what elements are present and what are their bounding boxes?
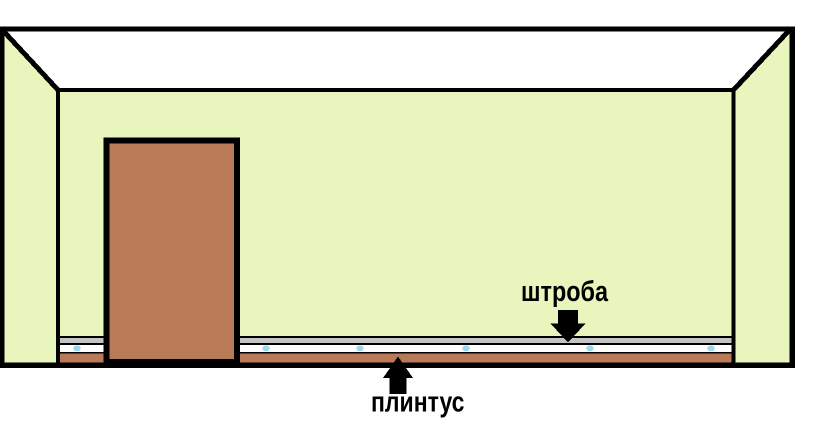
svg-text:штроба: штроба [521,276,609,308]
svg-text:плинтус: плинтус [371,387,465,419]
